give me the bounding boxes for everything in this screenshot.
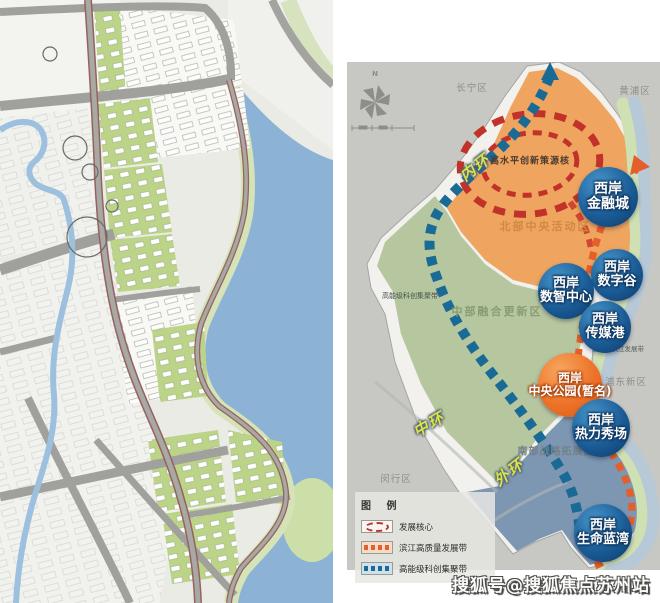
- site-plan-map: [0, 0, 333, 603]
- node-financial-city: 西岸 金融城: [578, 167, 638, 227]
- legend-item-riverside-belt: 滨江高质量发展带: [361, 541, 489, 554]
- node-media-port: 西岸 传媒港: [579, 301, 631, 353]
- node-financial-city-line2: 金融城: [587, 197, 629, 212]
- site-plan-graphic: [0, 0, 333, 603]
- screenshot-root: N 长宁区 黄浦区 浦东新区 闵行区 高水平创新策源核 北部中央活动区 中部融合…: [0, 0, 660, 603]
- legend: 图 例 发展核心 滨江高质量发展带 高能级科创集聚带: [355, 492, 495, 583]
- watermark: 搜狐号@搜狐焦点苏州站: [452, 571, 650, 596]
- node-dynamic-show-line1: 西岸: [588, 414, 614, 428]
- node-dynamic-show-line2: 热力秀场: [575, 428, 627, 442]
- node-central-park-line2: 中央公园(暂名): [529, 385, 612, 398]
- node-digital-valley-line1: 西岸: [604, 261, 630, 275]
- legend-title: 图 例: [361, 497, 489, 512]
- legend-item-core: 发展核心: [361, 520, 489, 533]
- legend-science-belt-symbol: [361, 562, 393, 575]
- node-life-blue-bay-line2: 生命蓝湾: [577, 533, 629, 547]
- node-life-blue-bay-line1: 西岸: [590, 519, 616, 533]
- node-media-port-line2: 传媒港: [585, 327, 624, 341]
- legend-riverside-belt-symbol: [361, 541, 393, 554]
- node-digital-valley: 西岸 数字谷: [591, 249, 643, 301]
- planning-diagram: N 长宁区 黄浦区 浦东新区 闵行区 高水平创新策源核 北部中央活动区 中部融合…: [347, 62, 660, 570]
- legend-core-symbol: [361, 520, 393, 533]
- scale-bar: [352, 125, 414, 131]
- node-dynamic-show: 西岸 热力秀场: [572, 399, 630, 457]
- legend-core-label: 发展核心: [399, 521, 433, 533]
- node-financial-city-line1: 西岸: [594, 182, 622, 197]
- compass-rose: [360, 85, 390, 119]
- node-digital-valley-line2: 数字谷: [597, 275, 636, 289]
- node-media-port-line1: 西岸: [592, 313, 618, 327]
- node-smart-center-line1: 西岸: [553, 277, 579, 291]
- node-life-blue-bay: 西岸 生命蓝湾: [574, 504, 632, 562]
- node-smart-center-line2: 数智中心: [540, 291, 592, 305]
- legend-riverside-belt-label: 滨江高质量发展带: [399, 542, 467, 554]
